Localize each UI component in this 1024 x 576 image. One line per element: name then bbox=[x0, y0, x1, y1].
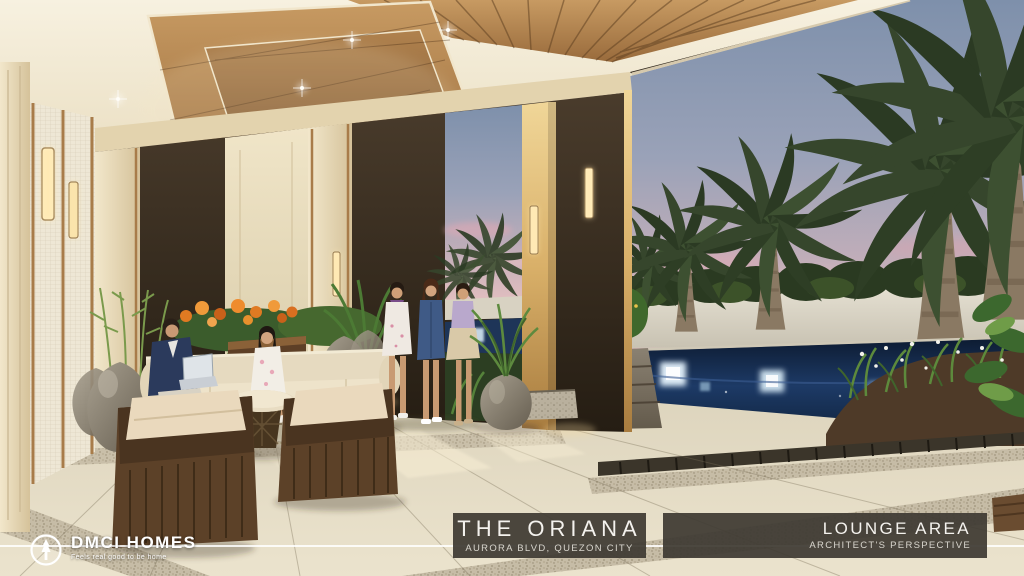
dmci-logo-icon bbox=[28, 532, 64, 568]
view-type: ARCHITECT'S PERSPECTIVE bbox=[809, 540, 971, 551]
wall-sconce bbox=[585, 168, 593, 218]
view-name: LOUNGE AREA bbox=[823, 520, 971, 538]
project-title-banner: THE ORIANA AURORA BLVD, QUEZON CITY bbox=[453, 513, 646, 558]
dark-pier bbox=[548, 92, 632, 432]
brand-name: DMCI HOMES bbox=[71, 534, 197, 551]
wall-sconce bbox=[530, 206, 538, 254]
project-location: AURORA BLVD, QUEZON CITY bbox=[465, 543, 633, 554]
rendering-page: DMCI HOMES Feels real good to be home TH… bbox=[0, 0, 1024, 576]
wall-sconce bbox=[42, 148, 54, 220]
column bbox=[95, 147, 140, 401]
wall-sconce bbox=[69, 182, 78, 238]
view-label-banner: LOUNGE AREA ARCHITECT'S PERSPECTIVE bbox=[663, 513, 987, 558]
gold-column bbox=[522, 102, 548, 430]
laptop bbox=[179, 354, 218, 390]
dmci-homes-logo: DMCI HOMES Feels real good to be home bbox=[28, 531, 197, 568]
armchair-right bbox=[274, 383, 406, 511]
terrazzo-base bbox=[525, 390, 578, 420]
brand-tagline: Feels real good to be home bbox=[71, 554, 197, 561]
lounge-scene bbox=[0, 0, 1024, 576]
project-name: THE ORIANA bbox=[457, 517, 641, 540]
